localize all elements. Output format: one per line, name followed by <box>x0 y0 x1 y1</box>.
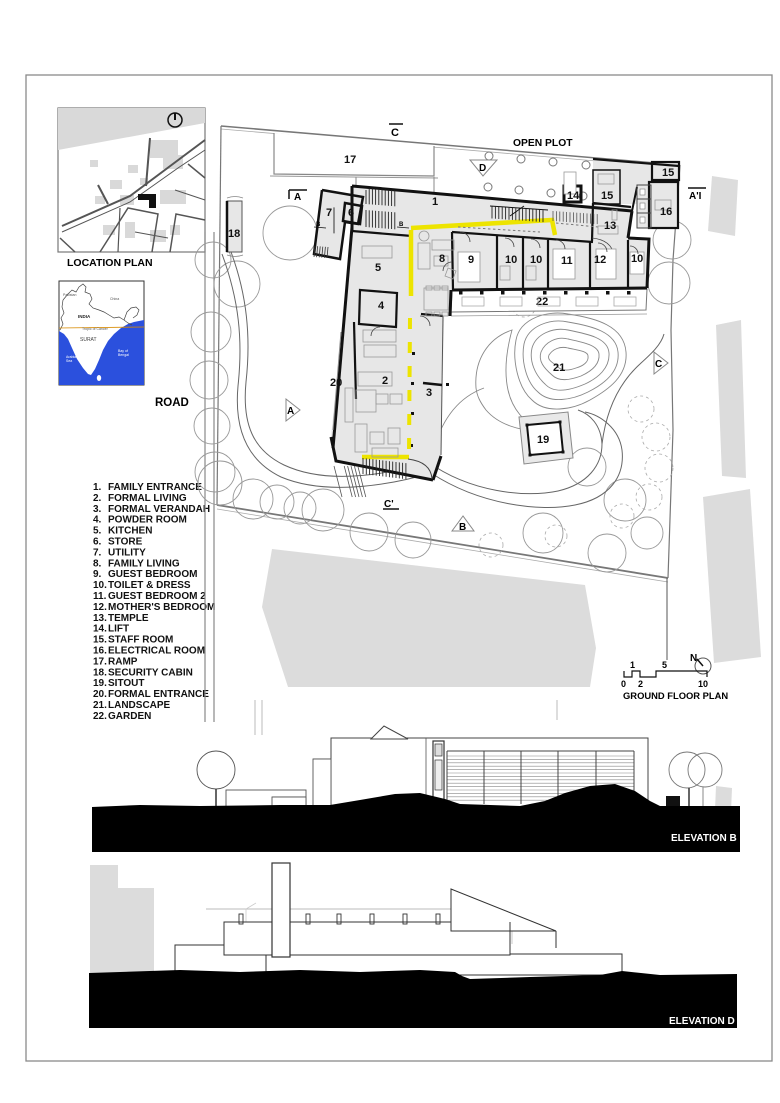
svg-text:12: 12 <box>594 254 606 266</box>
svg-text:N: N <box>690 653 697 664</box>
svg-text:0: 0 <box>621 679 626 689</box>
svg-text:GROUND FLOOR PLAN: GROUND FLOOR PLAN <box>623 690 728 701</box>
svg-text:14: 14 <box>567 190 580 202</box>
svg-text:2.: 2. <box>93 493 102 504</box>
svg-text:A: A <box>294 192 301 203</box>
svg-text:7.: 7. <box>93 547 102 558</box>
svg-text:C: C <box>655 359 662 370</box>
svg-text:Sea: Sea <box>66 359 72 363</box>
svg-text:ROAD: ROAD <box>155 397 189 409</box>
svg-text:D: D <box>479 163 486 174</box>
svg-text:ELEVATION B: ELEVATION B <box>671 833 737 844</box>
svg-text:LANDSCAPE: LANDSCAPE <box>108 700 171 711</box>
svg-text:STAFF ROOM: STAFF ROOM <box>108 635 173 646</box>
svg-text:20.: 20. <box>93 689 107 700</box>
svg-text:China: China <box>110 297 119 301</box>
svg-text:16.: 16. <box>93 646 107 657</box>
svg-text:FORMAL LIVING: FORMAL LIVING <box>108 493 187 504</box>
svg-text:Tropic of Cancer: Tropic of Cancer <box>82 327 109 331</box>
svg-text:15.: 15. <box>93 635 107 646</box>
svg-text:4.: 4. <box>93 515 102 526</box>
svg-text:KITCHEN: KITCHEN <box>108 526 152 537</box>
svg-text:1: 1 <box>432 196 438 208</box>
svg-text:GUEST BEDROOM: GUEST BEDROOM <box>108 569 197 580</box>
svg-text:9: 9 <box>468 254 474 266</box>
svg-text:C: C <box>391 127 399 139</box>
svg-text:21: 21 <box>553 362 565 374</box>
svg-text:RAMP: RAMP <box>108 656 138 667</box>
svg-text:5.: 5. <box>93 526 102 537</box>
svg-text:5: 5 <box>375 262 381 274</box>
svg-text:14.: 14. <box>93 624 107 635</box>
svg-text:22.: 22. <box>93 711 107 722</box>
svg-text:19.: 19. <box>93 678 107 689</box>
svg-text:8.: 8. <box>93 558 102 569</box>
svg-text:GUEST BEDROOM 2: GUEST BEDROOM 2 <box>108 591 206 602</box>
svg-text:ELECTRICAL ROOM: ELECTRICAL ROOM <box>108 646 205 657</box>
svg-text:8: 8 <box>439 253 445 265</box>
svg-text:LIFT: LIFT <box>108 624 129 635</box>
svg-text:TEMPLE: TEMPLE <box>108 613 149 624</box>
svg-text:11: 11 <box>561 255 573 267</box>
svg-text:16: 16 <box>660 206 672 218</box>
svg-text:10: 10 <box>505 254 517 266</box>
svg-text:17.: 17. <box>93 656 107 667</box>
svg-text:INDIA: INDIA <box>78 314 91 319</box>
svg-text:6.: 6. <box>93 537 102 548</box>
svg-text:13.: 13. <box>93 613 107 624</box>
svg-text:SURAT: SURAT <box>80 337 97 343</box>
svg-text:Pakistan: Pakistan <box>63 293 76 297</box>
svg-text:15: 15 <box>662 167 674 179</box>
svg-text:A'I: A'I <box>689 191 702 202</box>
svg-text:FORMAL VERANDAH: FORMAL VERANDAH <box>108 504 210 515</box>
svg-text:10.: 10. <box>93 580 107 591</box>
svg-text:20: 20 <box>330 377 342 389</box>
svg-text:10: 10 <box>530 254 542 266</box>
svg-text:2: 2 <box>638 679 643 689</box>
svg-text:3.: 3. <box>93 504 102 515</box>
svg-text:FORMAL ENTRANCE: FORMAL ENTRANCE <box>108 689 209 700</box>
svg-text:18: 18 <box>228 228 240 240</box>
svg-text:9.: 9. <box>93 569 102 580</box>
svg-text:GARDEN: GARDEN <box>108 711 151 722</box>
svg-text:A: A <box>287 406 294 417</box>
svg-text:POWDER ROOM: POWDER ROOM <box>108 515 187 526</box>
svg-text:LOCATION PLAN: LOCATION PLAN <box>67 257 153 269</box>
svg-text:15: 15 <box>601 190 613 202</box>
svg-text:11.: 11. <box>93 591 107 602</box>
svg-text:FAMILY ENTRANCE: FAMILY ENTRANCE <box>108 482 202 493</box>
svg-text:17: 17 <box>344 154 356 166</box>
svg-text:12.: 12. <box>93 602 107 613</box>
svg-text:1.: 1. <box>93 482 102 493</box>
svg-text:MOTHER'S BEDROOM: MOTHER'S BEDROOM <box>108 602 215 613</box>
svg-text:Bengal: Bengal <box>118 353 129 357</box>
svg-text:ELEVATION D: ELEVATION D <box>669 1016 735 1027</box>
svg-text:10: 10 <box>631 253 643 265</box>
svg-text:STORE: STORE <box>108 537 143 548</box>
svg-text:C': C' <box>384 499 394 510</box>
svg-text:2: 2 <box>382 375 388 387</box>
svg-text:OPEN PLOT: OPEN PLOT <box>513 138 573 149</box>
svg-text:21.: 21. <box>93 700 107 711</box>
svg-text:10: 10 <box>698 679 708 689</box>
svg-text:6: 6 <box>348 207 354 219</box>
svg-text:FAMILY LIVING: FAMILY LIVING <box>108 558 180 569</box>
svg-text:19: 19 <box>537 434 549 446</box>
svg-text:1: 1 <box>630 660 635 670</box>
svg-text:SECURITY CABIN: SECURITY CABIN <box>108 667 193 678</box>
svg-text:4: 4 <box>378 300 385 312</box>
svg-text:3: 3 <box>426 387 432 399</box>
svg-text:SITOUT: SITOUT <box>108 678 144 689</box>
svg-text:13: 13 <box>604 220 616 232</box>
svg-text:TOILET & DRESS: TOILET & DRESS <box>108 580 191 591</box>
svg-text:UTILITY: UTILITY <box>108 547 146 558</box>
svg-text:7: 7 <box>326 207 332 219</box>
svg-text:5: 5 <box>662 660 667 670</box>
svg-text:18.: 18. <box>93 667 107 678</box>
svg-text:B: B <box>459 522 466 533</box>
